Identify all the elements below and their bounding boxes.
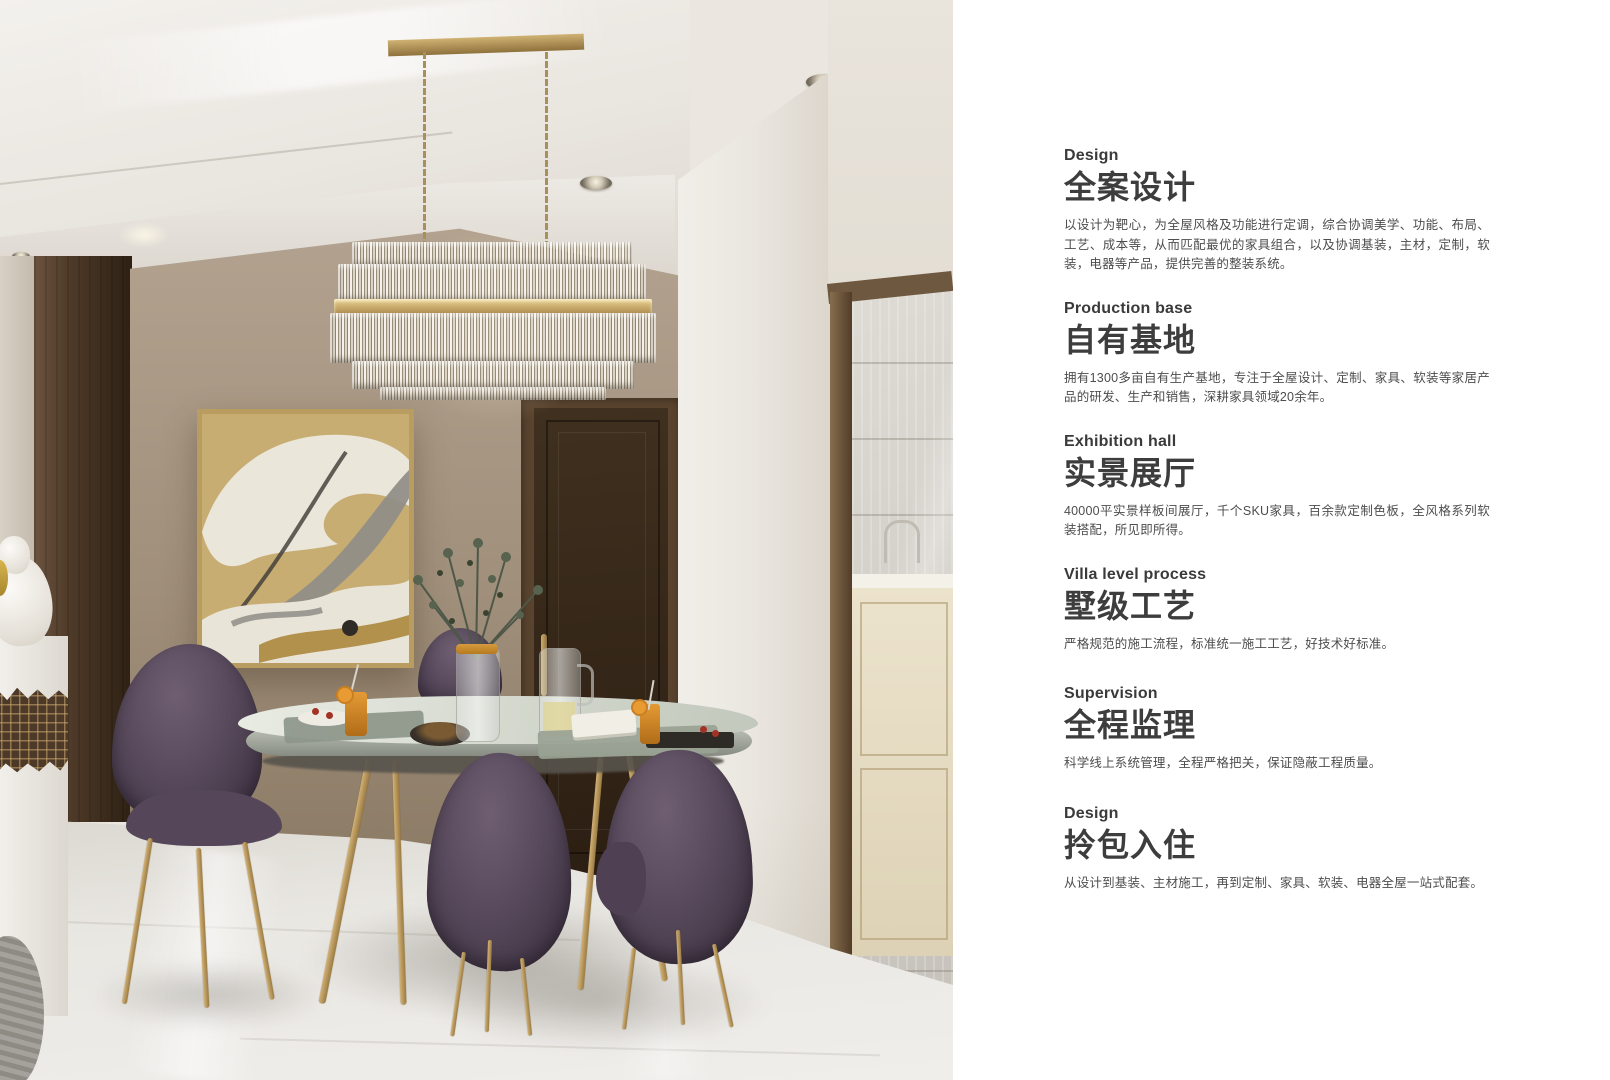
feature-title-zh: 拎包入住: [1064, 825, 1490, 865]
abstract-painting: [197, 409, 414, 668]
food-garnish: [312, 708, 319, 715]
feature-section-villa-process: Villa level process 墅级工艺 严格规范的施工流程，标准统一施…: [1064, 565, 1490, 655]
plate: [298, 710, 352, 726]
feature-title-zh: 全程监理: [1064, 705, 1490, 745]
feature-title-zh: 实景展厅: [1064, 453, 1490, 493]
feature-label-en: Exhibition hall: [1064, 432, 1490, 452]
painting-canvas: [202, 414, 409, 663]
chandelier-chain: [423, 52, 426, 245]
feature-title-zh: 自有基地: [1064, 320, 1490, 360]
wall-above-partition: [828, 0, 953, 290]
feature-section-exhibition-hall: Exhibition hall 实景展厅 40000平实景样板间展厅，千个SKU…: [1064, 432, 1490, 541]
chandelier-chain: [545, 52, 548, 245]
food-garnish: [712, 730, 719, 737]
vase-gold-ring: [456, 644, 498, 654]
features-panel: Design 全案设计 以设计为靶心，为全屋风格及功能进行定调，综合协调美学、功…: [953, 0, 1610, 1080]
feature-section-production-base: Production base 自有基地 拥有1300多亩自有生产基地，专注于全…: [1064, 299, 1490, 408]
cabinet-panel-line: [860, 768, 948, 940]
feature-label-en: Design: [1064, 804, 1490, 824]
food-garnish: [326, 712, 333, 719]
cabinet-panel-line: [860, 602, 948, 756]
feature-body: 以设计为靶心，为全屋风格及功能进行定调，综合协调美学、功能、布局、工艺、成本等，…: [1064, 216, 1490, 275]
feature-section-move-in: Design 拎包入住 从设计到基装、主材施工，再到定制、家具、软装、电器全屋一…: [1064, 804, 1490, 894]
food-garnish: [700, 726, 707, 733]
feature-body: 从设计到基装、主材施工，再到定制、家具、软装、电器全屋一站式配套。: [1064, 874, 1490, 894]
orange-slice: [631, 699, 648, 716]
pitcher-handle: [577, 664, 594, 706]
faucet-icon: [884, 520, 920, 563]
feature-title-zh: 墅级工艺: [1064, 586, 1490, 626]
orange-slice: [336, 686, 354, 704]
napkin-book: [571, 709, 637, 740]
feature-title-zh: 全案设计: [1064, 167, 1490, 207]
feature-body: 严格规范的施工流程，标准统一施工工艺，好技术好标准。: [1064, 635, 1490, 655]
chandelier-crystal-tier: [330, 313, 656, 363]
dining-chair-seat: [596, 842, 646, 916]
landing-page: Design 全案设计 以设计为靶心，为全屋风格及功能进行定调，综合协调美学、功…: [0, 0, 1610, 1080]
glass-vase: [456, 648, 500, 742]
feature-label-en: Villa level process: [1064, 565, 1490, 585]
vase-plant: [388, 535, 563, 660]
feature-body: 拥有1300多亩自有生产基地，专注于全屋设计、定制、家具、软装等家居产品的研发、…: [1064, 369, 1490, 408]
feature-section-supervision: Supervision 全程监理 科学线上系统管理，全程严格把关，保证隐蔽工程质…: [1064, 684, 1490, 774]
chandelier-crystal-fringe: [380, 387, 606, 400]
interior-photo: [0, 0, 953, 1080]
feature-label-en: Production base: [1064, 299, 1490, 319]
feature-body: 40000平实景样板间展厅，千个SKU家具，百余款定制色板，全风格系列软装搭配，…: [1064, 502, 1490, 541]
feature-label-en: Supervision: [1064, 684, 1490, 704]
chandelier-crystal-tier: [338, 264, 646, 302]
feature-section-design: Design 全案设计 以设计为靶心，为全屋风格及功能进行定调，综合协调美学、功…: [1064, 146, 1490, 275]
chandelier-crystal-tier: [352, 361, 634, 389]
soffit-glow: [118, 222, 170, 248]
recessed-light-icon: [580, 176, 612, 190]
feature-label-en: Design: [1064, 146, 1490, 166]
kitchen-countertop: [852, 574, 953, 588]
partition-frame: [830, 292, 852, 998]
mosaic-band: [0, 686, 68, 774]
feature-body: 科学线上系统管理，全程严格把关，保证隐蔽工程质量。: [1064, 754, 1490, 774]
glass-partition: [828, 258, 953, 1000]
